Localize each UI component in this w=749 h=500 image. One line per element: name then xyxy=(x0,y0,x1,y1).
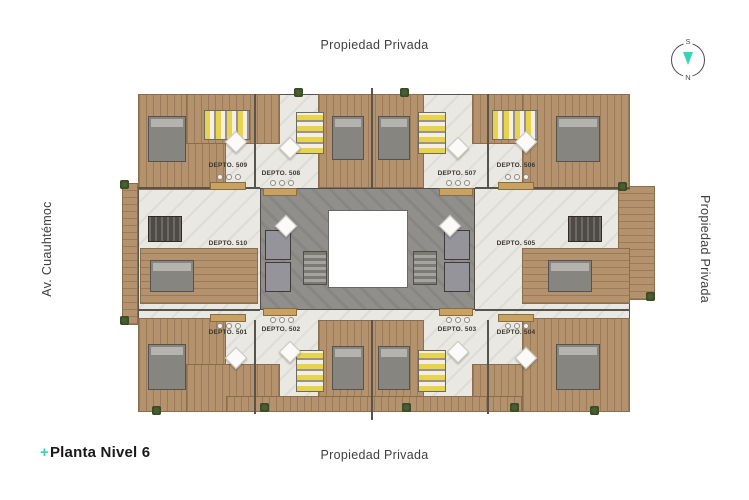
floor-plan: DEPTO. 509 DEPTO. 508 DEPTO. 507 DEPTO. … xyxy=(120,88,660,420)
unit-label-503: DEPTO. 503 xyxy=(433,326,481,333)
deck-bottom-edge xyxy=(226,396,522,412)
bed-505 xyxy=(548,260,592,292)
kitchen-503 xyxy=(439,308,473,316)
stools-502 xyxy=(270,317,294,323)
rug-505 xyxy=(568,216,602,242)
kitchen-502 xyxy=(263,308,297,316)
plant-icon xyxy=(294,88,303,97)
stools-506 xyxy=(505,174,529,180)
plant-icon xyxy=(120,180,129,189)
kitchen-507 xyxy=(439,188,473,196)
plus-icon: + xyxy=(40,444,49,461)
unit-label-510: DEPTO. 510 xyxy=(204,240,252,247)
kitchen-508 xyxy=(263,188,297,196)
kitchen-509 xyxy=(210,182,246,190)
stools-508 xyxy=(270,180,294,186)
wall-507-506 xyxy=(487,94,489,188)
plant-icon xyxy=(260,403,269,412)
plant-icon xyxy=(590,406,599,415)
bed-bottom-center-right xyxy=(378,346,410,390)
kitchen-501 xyxy=(210,314,246,322)
wall-503-504 xyxy=(487,320,489,414)
plant-icon xyxy=(618,182,627,191)
plant-icon xyxy=(400,88,409,97)
elevator-left-2 xyxy=(265,262,291,292)
kitchen-506 xyxy=(498,182,534,190)
elevator-right-2 xyxy=(444,262,470,292)
compass-needle-icon xyxy=(683,52,693,65)
plant-icon xyxy=(152,406,161,415)
rug-510 xyxy=(148,216,182,242)
unit-label-506: DEPTO. 506 xyxy=(492,162,540,169)
bed-top-center-left xyxy=(332,116,364,160)
label-propiedad-privada-right: Propiedad Privada xyxy=(698,169,712,329)
page-title: +Planta Nivel 6 xyxy=(40,444,150,461)
unit-label-505: DEPTO. 505 xyxy=(492,240,540,247)
unit-label-502: DEPTO. 502 xyxy=(257,326,305,333)
unit-label-509: DEPTO. 509 xyxy=(204,162,252,169)
label-propiedad-privada-top: Propiedad Privada xyxy=(0,38,749,52)
bed-503 xyxy=(418,350,446,392)
bed-507 xyxy=(418,112,446,154)
stairs-left xyxy=(303,251,327,285)
page: Propiedad Privada Propiedad Privada Av. … xyxy=(0,0,749,500)
label-av-cuauhtemoc: Av. Cuauhtémoc xyxy=(40,169,54,329)
stools-507 xyxy=(446,180,470,186)
bed-509 xyxy=(204,110,250,140)
compass-south-label: S xyxy=(683,38,692,46)
page-title-text: Planta Nivel 6 xyxy=(50,444,150,461)
wall-center-bottom xyxy=(371,320,373,420)
wall-mid-right-bottom xyxy=(475,309,630,311)
unit-label-501: DEPTO. 501 xyxy=(204,329,252,336)
bed-top-right-corner xyxy=(556,116,600,162)
plant-icon xyxy=(402,403,411,412)
wall-mid-left-bottom xyxy=(138,309,260,311)
bed-510 xyxy=(150,260,194,292)
stools-503 xyxy=(446,317,470,323)
kitchen-504 xyxy=(498,314,534,322)
wall-501-502 xyxy=(254,320,256,414)
wall-509-508 xyxy=(254,94,256,188)
bed-top-left-corner xyxy=(148,116,186,162)
unit-label-504: DEPTO. 504 xyxy=(492,329,540,336)
lightwell-void xyxy=(328,210,408,288)
plant-icon xyxy=(646,292,655,301)
wall-center-top xyxy=(371,88,373,188)
bed-502 xyxy=(296,350,324,392)
stairs-right xyxy=(413,251,437,285)
left-terrace-deck xyxy=(122,183,138,325)
stools-509 xyxy=(217,174,241,180)
bed-bottom-left-corner xyxy=(148,344,186,390)
plant-icon xyxy=(510,403,519,412)
unit-label-507: DEPTO. 507 xyxy=(433,170,481,177)
compass-icon: S N xyxy=(671,43,705,77)
bed-bottom-right-corner xyxy=(556,344,600,390)
compass-north-label: N xyxy=(683,74,692,82)
unit-label-508: DEPTO. 508 xyxy=(257,170,305,177)
plant-icon xyxy=(120,316,129,325)
bed-bottom-center-left xyxy=(332,346,364,390)
bed-top-center-right xyxy=(378,116,410,160)
